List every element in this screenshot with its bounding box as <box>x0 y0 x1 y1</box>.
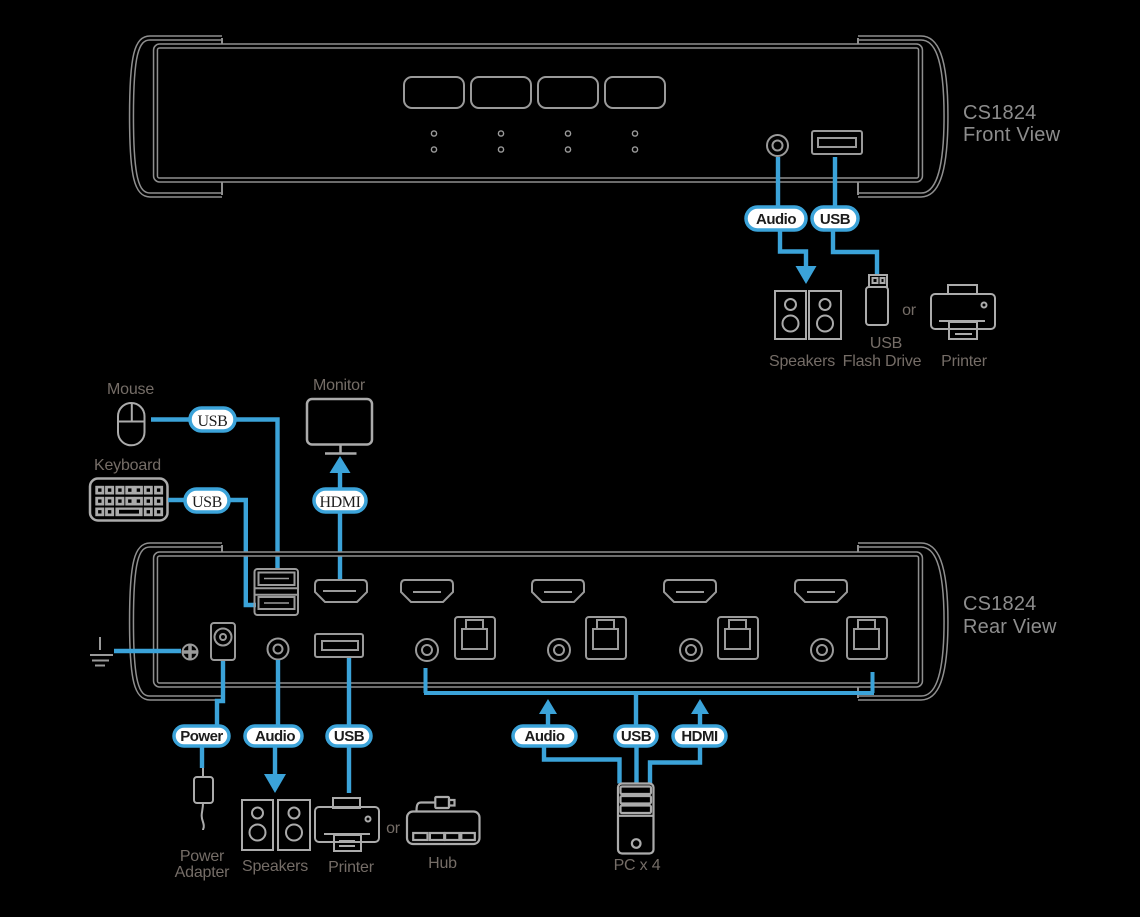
svg-text:Mouse: Mouse <box>107 381 154 398</box>
svg-text:Keyboard: Keyboard <box>94 457 161 474</box>
svg-text:Front View: Front View <box>963 124 1061 146</box>
svg-text:Power: Power <box>180 728 223 745</box>
svg-text:HDMI: HDMI <box>681 728 718 745</box>
svg-text:Printer: Printer <box>328 859 375 876</box>
svg-text:or: or <box>902 302 917 319</box>
svg-text:Rear View: Rear View <box>963 616 1057 638</box>
svg-text:Audio: Audio <box>525 728 565 745</box>
svg-text:Audio: Audio <box>255 728 295 745</box>
svg-text:USB: USB <box>334 728 365 745</box>
svg-text:PC x 4: PC x 4 <box>614 857 661 874</box>
svg-text:Speakers: Speakers <box>769 353 835 370</box>
svg-text:or: or <box>386 820 401 837</box>
svg-text:CS1824: CS1824 <box>963 593 1036 615</box>
svg-text:Speakers: Speakers <box>242 858 308 875</box>
svg-text:Adapter: Adapter <box>175 864 231 881</box>
svg-text:USB: USB <box>621 728 652 745</box>
svg-text:USB: USB <box>870 335 902 352</box>
svg-text:Hub: Hub <box>428 855 457 872</box>
svg-text:Power: Power <box>180 848 225 865</box>
svg-text:CS1824: CS1824 <box>963 102 1036 124</box>
svg-text:Printer: Printer <box>941 353 988 370</box>
svg-text:USB: USB <box>198 413 228 430</box>
svg-text:HDMI: HDMI <box>319 494 360 511</box>
svg-text:USB: USB <box>192 494 222 511</box>
svg-text:Audio: Audio <box>756 211 796 228</box>
svg-text:Monitor: Monitor <box>313 377 366 394</box>
svg-text:Flash Drive: Flash Drive <box>843 353 922 370</box>
svg-text:USB: USB <box>820 211 851 228</box>
